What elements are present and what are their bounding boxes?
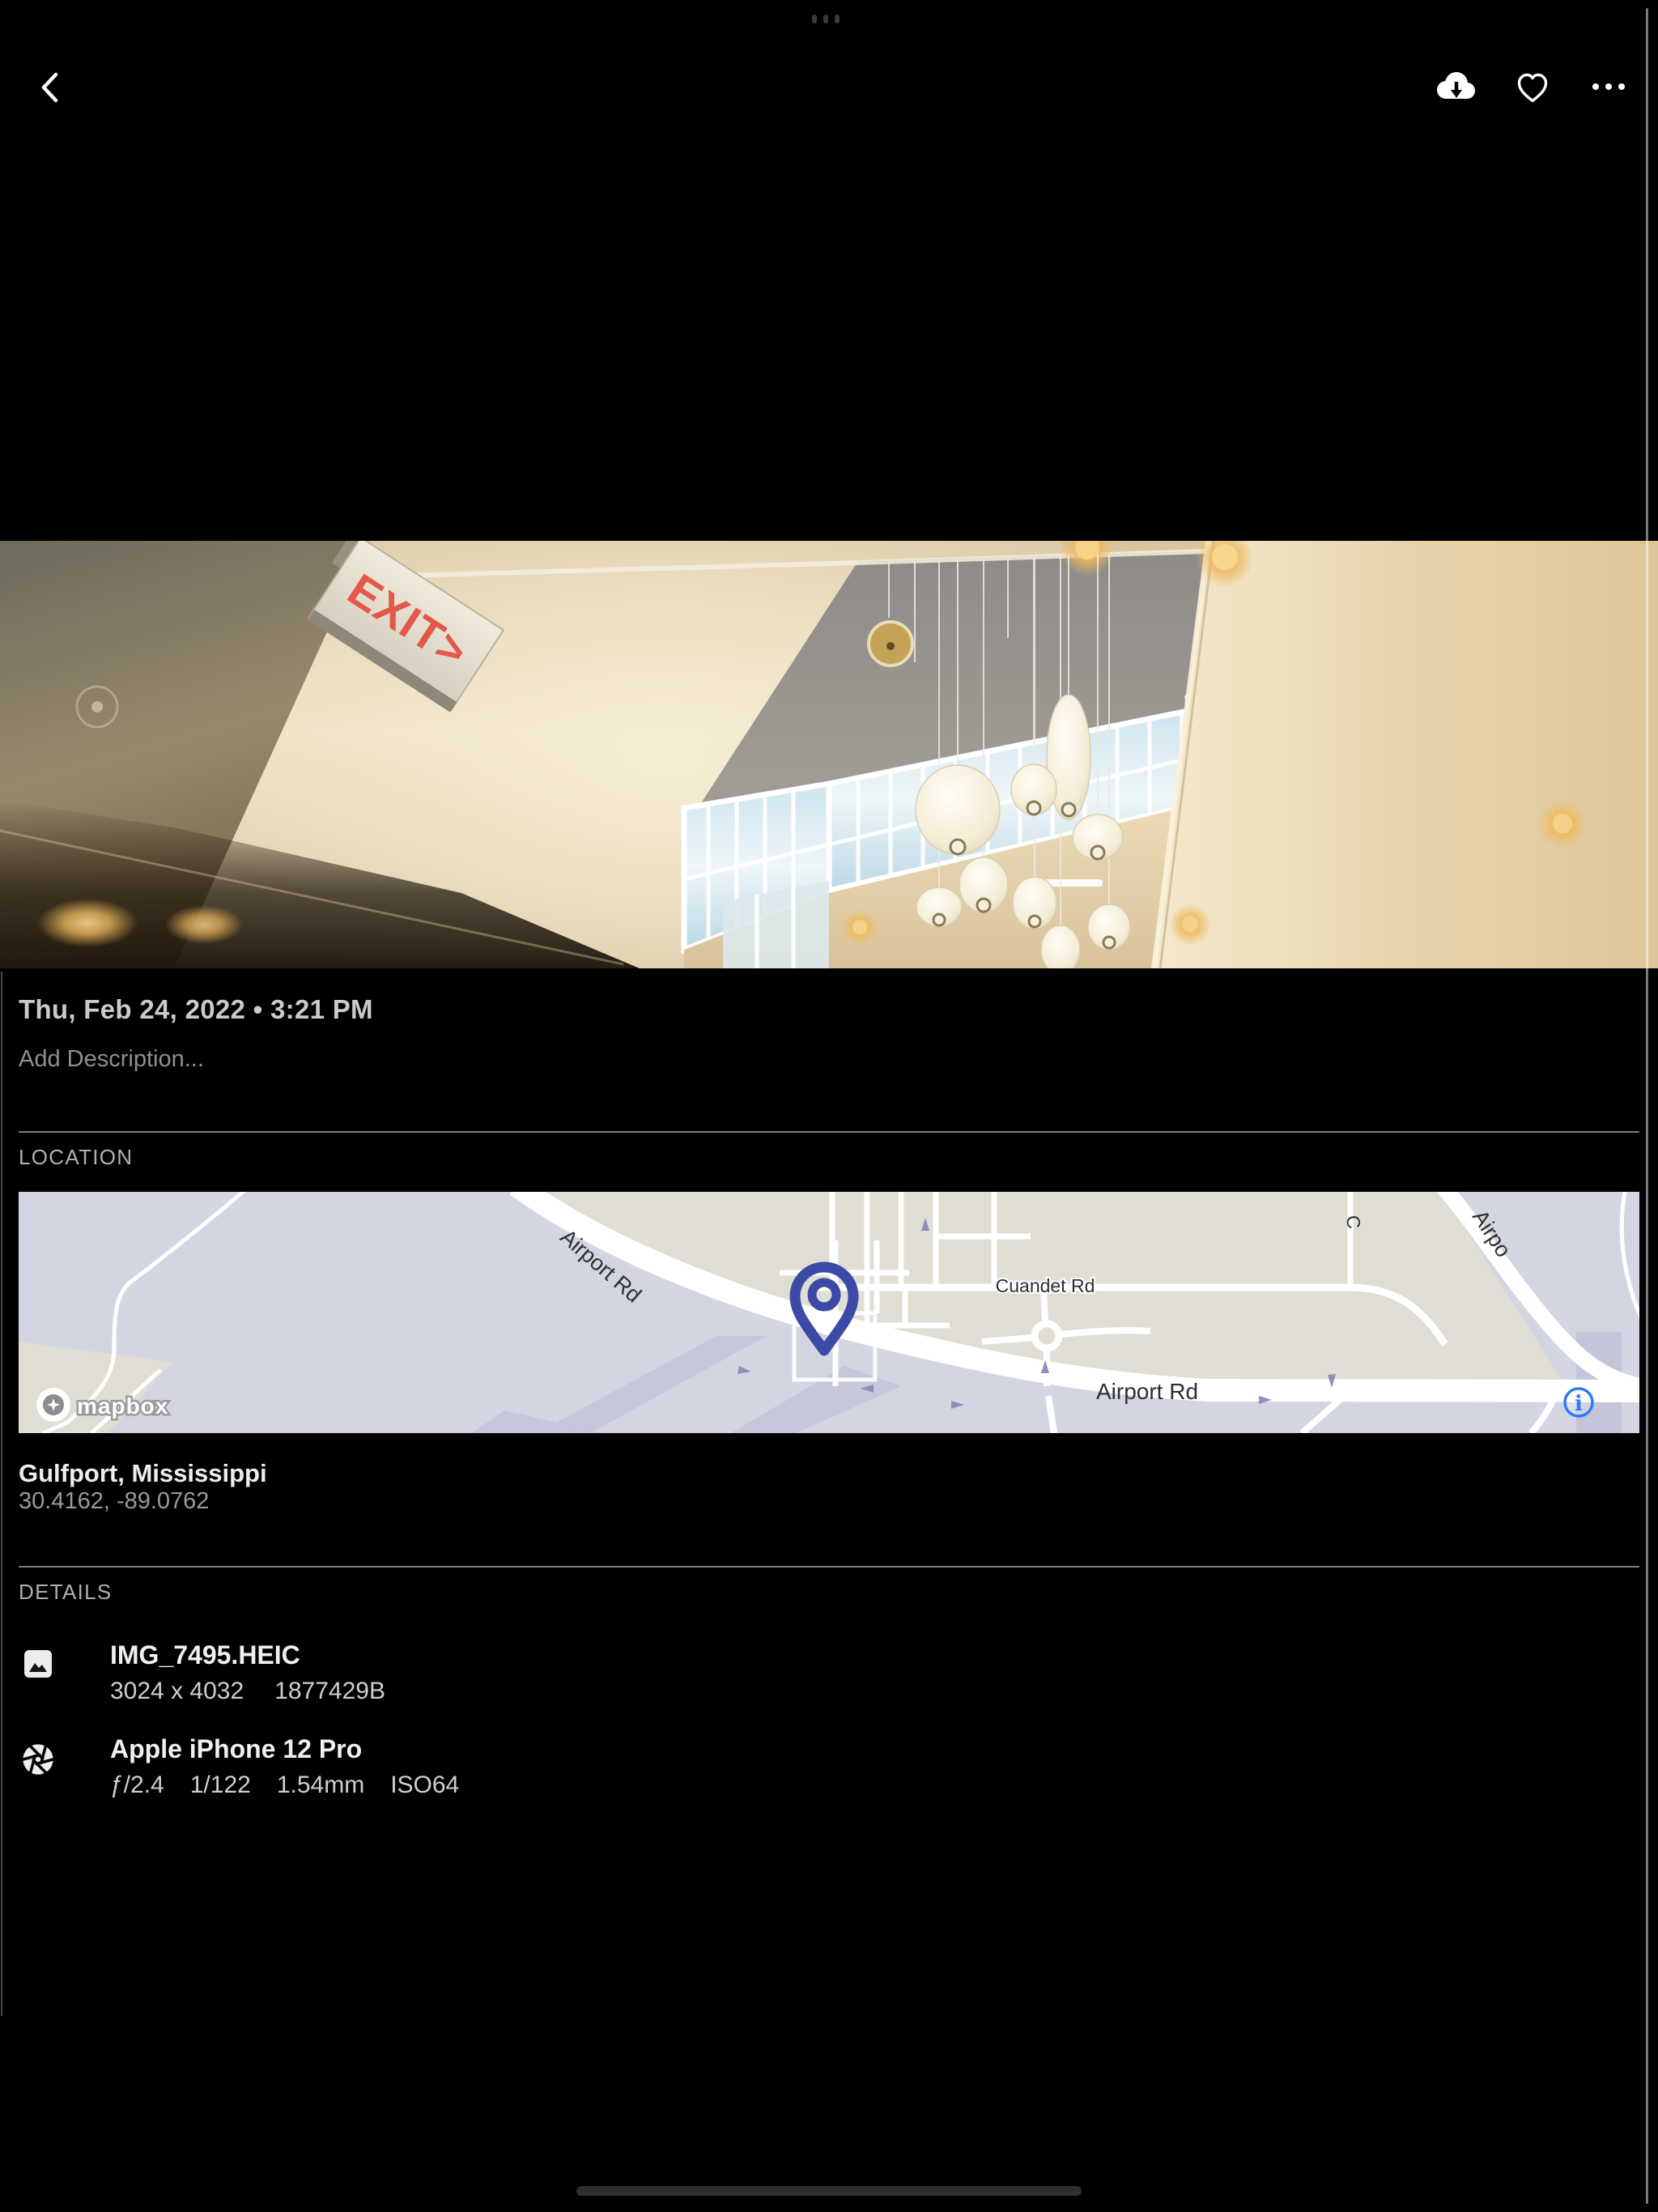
camera-shutter-speed: 1/122 xyxy=(190,1772,251,1799)
location-section-header: LOCATION xyxy=(19,1145,133,1170)
file-dimensions: 3024 x 4032 xyxy=(110,1678,244,1705)
map-label-airport-rd-horizontal: Airport Rd xyxy=(1096,1379,1198,1404)
camera-iso: ISO64 xyxy=(390,1772,459,1799)
add-description-field[interactable]: Add Description... xyxy=(19,1046,204,1073)
camera-aperture: ƒ/2.4 xyxy=(110,1772,164,1799)
mapbox-attribution[interactable]: mapbox xyxy=(36,1388,168,1422)
chevron-left-icon xyxy=(34,70,70,105)
cloud-download-icon xyxy=(1431,68,1481,105)
divider xyxy=(19,1131,1639,1133)
camera-icon-wrap xyxy=(21,1742,55,1780)
photo-datetime: Thu, Feb 24, 2022 • 3:21 PM xyxy=(19,994,373,1025)
info-glyph: i xyxy=(1575,1392,1583,1416)
file-name: IMG_7495.HEIC xyxy=(110,1640,300,1670)
image-file-icon xyxy=(23,1648,53,1679)
location-place-name: Gulfport, Mississippi xyxy=(19,1459,267,1488)
map-label-cuandet-rd: Cuandet Rd xyxy=(996,1275,1095,1296)
camera-focal-length: 1.54mm xyxy=(277,1772,364,1799)
camera-specs: ƒ/2.4 1/122 1.54mm ISO64 xyxy=(110,1772,459,1799)
photo-detail-screen: EXIT> Thu, Feb 24, 2022 • 3:21 PM Add De… xyxy=(0,0,1658,2212)
photo-image: EXIT> xyxy=(0,541,1658,968)
map-info-button[interactable]: i xyxy=(1565,1389,1592,1416)
location-coordinates: 30.4162, -89.0762 xyxy=(19,1488,209,1515)
ellipsis-icon xyxy=(1590,81,1627,92)
mapbox-logo-text: mapbox xyxy=(77,1393,168,1419)
aperture-icon xyxy=(21,1742,55,1776)
download-button[interactable] xyxy=(1430,68,1482,105)
favorite-button[interactable] xyxy=(1512,66,1553,107)
location-map[interactable]: Airport Rd Cuandet Rd Airport Rd Airpo C… xyxy=(19,1192,1639,1433)
home-indicator[interactable] xyxy=(576,2186,1082,2196)
scrollbar[interactable] xyxy=(1646,8,1648,2204)
column xyxy=(1154,541,1658,968)
file-specs: 3024 x 4032 1877429B xyxy=(110,1678,385,1705)
file-size: 1877429B xyxy=(274,1678,385,1705)
map-canvas: Airport Rd Cuandet Rd Airport Rd Airpo C… xyxy=(19,1192,1639,1433)
back-button[interactable] xyxy=(32,68,71,107)
details-section-header: DETAILS xyxy=(19,1580,113,1605)
divider xyxy=(19,1566,1639,1568)
panel-edge-line xyxy=(1,972,2,2016)
map-label-c-road: C xyxy=(1342,1214,1365,1230)
heart-icon xyxy=(1513,67,1552,106)
multitask-indicator-icon[interactable] xyxy=(812,15,840,23)
more-options-button[interactable] xyxy=(1588,77,1629,96)
photo-preview[interactable]: EXIT> xyxy=(0,541,1658,968)
camera-name: Apple iPhone 12 Pro xyxy=(110,1734,362,1764)
file-type-icon xyxy=(23,1648,53,1683)
